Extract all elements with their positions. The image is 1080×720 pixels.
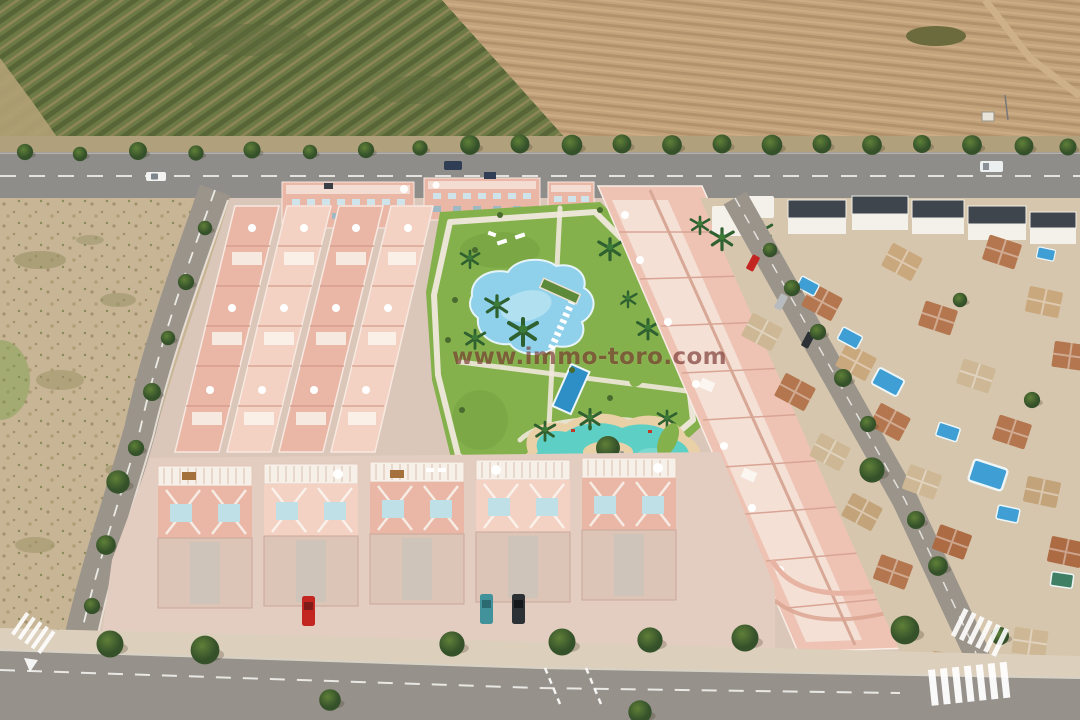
townhouse-unit bbox=[264, 464, 358, 626]
townhouse-row-south bbox=[100, 452, 775, 648]
townhouse-unit bbox=[476, 460, 570, 624]
teal-car bbox=[480, 594, 493, 624]
main-pool bbox=[470, 260, 594, 354]
field-bush bbox=[906, 26, 966, 46]
red-car bbox=[302, 596, 315, 626]
dark-car bbox=[512, 594, 525, 624]
scene-canvas bbox=[0, 0, 1080, 720]
white-car bbox=[146, 172, 166, 181]
blue-van bbox=[444, 161, 462, 170]
aerial-development-render: www.immo-toro.com bbox=[0, 0, 1080, 720]
townhouse-unit bbox=[158, 466, 252, 608]
townhouse-unit bbox=[370, 462, 464, 604]
field-shed bbox=[982, 112, 994, 121]
wood-table bbox=[182, 472, 196, 480]
white-van bbox=[980, 161, 1003, 172]
townhouse-unit bbox=[582, 458, 676, 600]
